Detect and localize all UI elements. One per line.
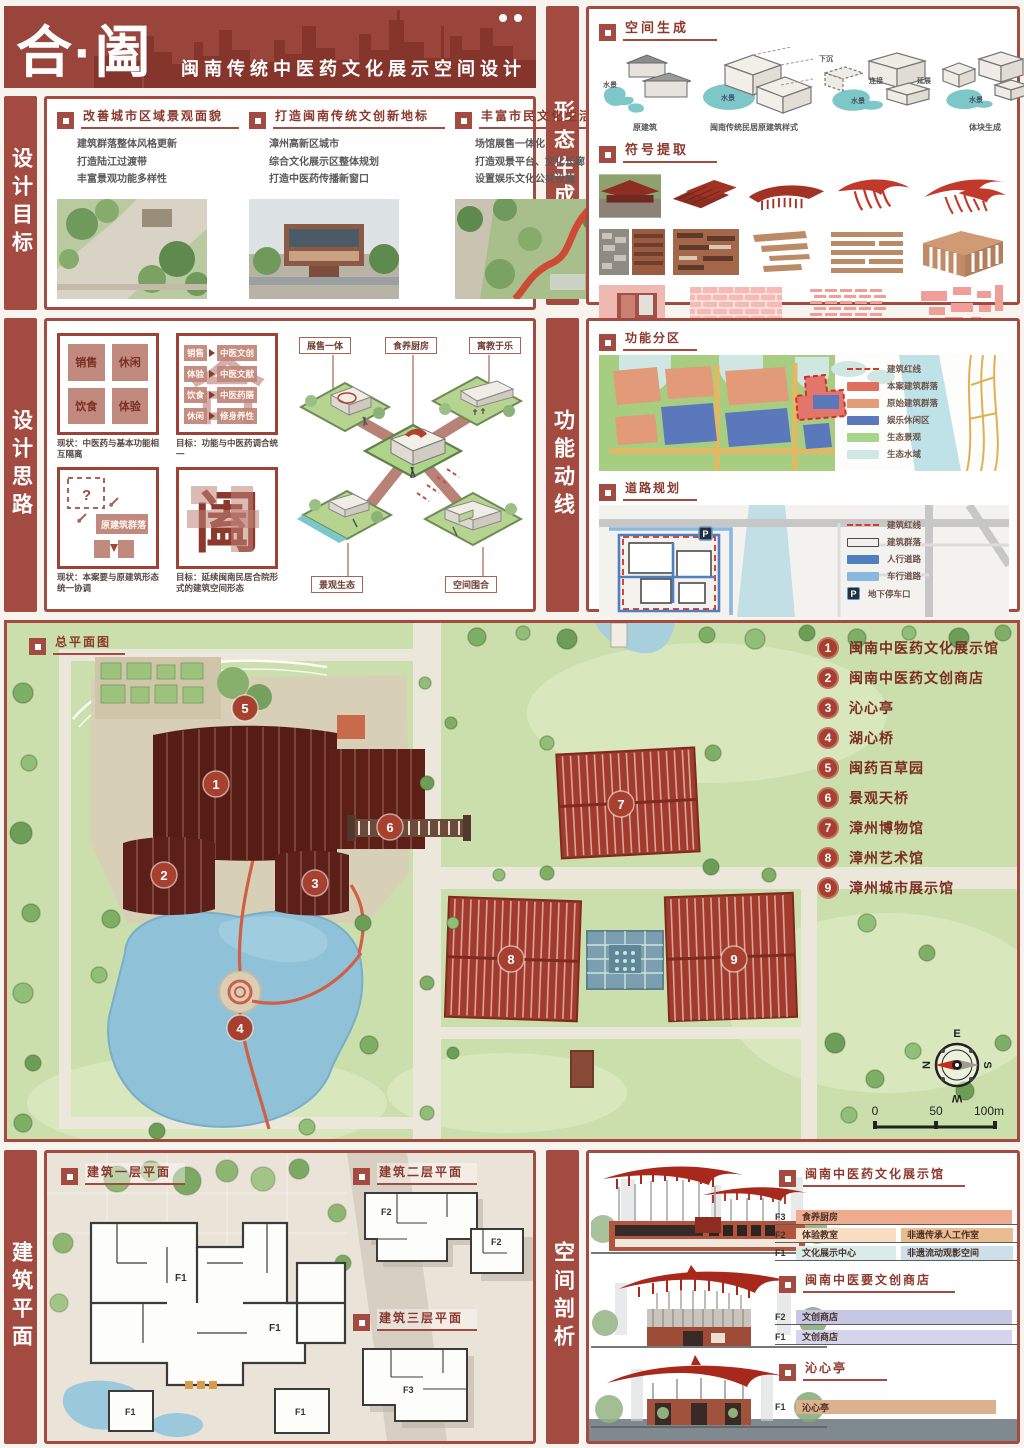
floor-row-f2: F2 体验教室 非遗传承人工作室 [775, 1227, 1017, 1243]
svg-text:0: 0 [872, 1104, 879, 1118]
thinking-diagram-4: 阖 目标：延续闽南民居合院形式的建筑空间形态 [176, 467, 285, 597]
section-square-icon [455, 112, 472, 129]
space-step-original: 水景 原建筑 [599, 47, 691, 133]
floor1-header: 建筑一层平面 [61, 1163, 185, 1185]
zoning-header: 功能分区 [599, 329, 1007, 351]
master-plan-legend: 1闽南中医药文化展示馆 2闽南中医药文创商店 3沁心亭 4湖心桥 5闽药百草园 … [817, 637, 999, 899]
shop-header: 闽南中医要文创商店 [779, 1271, 955, 1293]
section-square-icon [599, 24, 616, 41]
axon-label-enclosure: 空间围合 [445, 576, 497, 593]
zoning-legend: 建筑红线 本案建筑群落 原始建筑群落 娱乐休闲区 生态景观 生态水域 [847, 363, 938, 460]
shop-title: 闽南中医要文创商店 [803, 1271, 955, 1293]
panel-form-generation: 空间生成 水景 原建筑 [586, 6, 1020, 305]
space-generation-diagrams: 水景 原建筑 水景 闽南传统民居原建筑样式 [599, 47, 1007, 133]
svg-text:连接: 连接 [869, 76, 883, 85]
svg-text:F1: F1 [175, 1273, 187, 1284]
svg-text:原建筑群落: 原建筑群落 [101, 519, 147, 530]
svg-text:7: 7 [617, 797, 624, 812]
goal-photo-aerial-park [57, 199, 239, 299]
sidebar-function-circulation: 功能动线 [546, 318, 579, 612]
goal-column-1: 改善城市区域景观面貌 建筑群落整体风格更新 打造陆江过渡带 丰富景观功能多样性 [57, 107, 239, 299]
svg-text:5: 5 [241, 701, 248, 716]
road-legend: 建筑红线 建筑群落 人行道路 车行道路 P地下停车口 [847, 519, 921, 600]
sidebar-design-goals: 设计目标 [4, 96, 37, 310]
symbol-extraction-grid [599, 171, 1007, 329]
section-square-icon [353, 1168, 370, 1185]
master-plan-section: 1 2 3 4 5 6 7 8 9 E N S W [4, 620, 1020, 1142]
floor-row-f1: F1 文化展示中心 非遗流动观影空间 [775, 1245, 1017, 1261]
svg-text:下沉: 下沉 [819, 54, 833, 63]
svg-text:F2: F2 [491, 1237, 502, 1247]
legend-num: 1 [817, 637, 839, 659]
poster-subtitle: 闽南传统中医药文化展示空间设计 [181, 55, 526, 81]
floor3-title: 建筑三层平面 [377, 1309, 477, 1331]
swatch [847, 538, 879, 547]
section-square-icon [249, 112, 266, 129]
panel-function-circulation: 功能分区 [586, 318, 1020, 612]
floor1-title: 建筑一层平面 [85, 1163, 185, 1185]
svg-text:8: 8 [507, 952, 514, 967]
space-step-massing: 水景 闽南传统民居原建筑样式 [695, 47, 813, 133]
pavilion-title: 沁心亭 [803, 1359, 887, 1381]
svg-text:E: E [953, 1028, 960, 1040]
thinking-diagram-1: 销售 休闲 饮食 体验 现状：中医药与基本功能相互隔离 [57, 333, 166, 463]
redline-swatch [847, 368, 879, 370]
sidebar-design-thinking: 设计思路 [4, 318, 37, 612]
legend-num: 2 [817, 667, 839, 689]
swatch [847, 450, 879, 459]
svg-text:F1: F1 [295, 1407, 306, 1417]
svg-text:?: ? [82, 487, 91, 504]
arrow-icon [209, 370, 215, 378]
svg-text:F1: F1 [269, 1323, 281, 1334]
svg-text:100m: 100m [974, 1104, 1004, 1118]
svg-text:2: 2 [160, 868, 167, 883]
section-square-icon [353, 1314, 370, 1331]
museum-title: 闽南中医药文化展示馆 [803, 1165, 965, 1187]
space-generation-header: 空间生成 [599, 17, 1007, 41]
section-square-icon [61, 1168, 78, 1185]
svg-text:水景: 水景 [721, 93, 735, 102]
svg-text:4: 4 [236, 1021, 244, 1036]
svg-text:水景: 水景 [969, 95, 983, 104]
wall-photo-thumbs [599, 229, 665, 275]
axon-label-edutainment: 寓教于乐 [469, 337, 521, 354]
roof-symbol-swallowtail [834, 173, 913, 219]
roof-photo-thumb [599, 173, 661, 219]
svg-text:水景: 水景 [603, 80, 617, 89]
floor-row-f3: F3 食养厨房 [775, 1209, 1017, 1225]
arrow-icon [209, 391, 215, 399]
goal-header-2: 打造闽南传统文创新地标 [249, 107, 445, 129]
svg-text:F3: F3 [403, 1385, 414, 1395]
section-square-icon [599, 146, 616, 163]
axon-label-exhibit-sale: 展售一体 [299, 337, 351, 354]
svg-text:1: 1 [212, 777, 219, 792]
space-step-operations: 下沉 连接 延展 水景 [817, 47, 935, 133]
svg-text:水景: 水景 [851, 96, 865, 105]
thinking-diagram-2: 合 销售中医文创 体验中医文献 饮食中医药膳 休闲修身养性 目标：功能与中医药调… [176, 333, 285, 463]
section-square-icon [57, 112, 74, 129]
svg-text:S: S [981, 1061, 993, 1068]
axon-label-landscape: 景观生态 [311, 576, 363, 593]
stripes-symbol-pattern [827, 229, 907, 275]
section-square-icon [779, 1170, 796, 1187]
legend-num: 6 [817, 787, 839, 809]
space-step-result: 水景 体块生成 [939, 47, 1024, 133]
goal-title-1: 改善城市区域景观面貌 [81, 107, 239, 129]
panel-building-plans: F1 F1 F1 F1 F2 F2 F3 建筑一层平面 建筑二层平面 建筑三层 [44, 1150, 536, 1444]
swatch [847, 555, 879, 564]
floor-row-shop-f1: F1 文创商店 [775, 1329, 1017, 1345]
swatch [847, 399, 879, 408]
museum-header: 闽南中医药文化展示馆 [779, 1165, 965, 1187]
section-square-icon [779, 1364, 796, 1381]
legend-num: 3 [817, 697, 839, 719]
floor3-header: 建筑三层平面 [353, 1309, 477, 1331]
legend-num: 8 [817, 847, 839, 869]
section-square-icon [599, 334, 616, 351]
legend-num: 5 [817, 757, 839, 779]
roof-symbol-flat [669, 173, 739, 219]
svg-text:50: 50 [929, 1104, 943, 1118]
sidebar-space-analysis: 空间剖析 [546, 1150, 579, 1444]
thinking-diagram-grid: 销售 休闲 饮食 体验 现状：中医药与基本功能相互隔离 合 销售中医文创 体验中… [57, 333, 285, 597]
goal-bullets-1: 建筑群落整体风格更新 打造陆江过渡带 丰富景观功能多样性 [77, 136, 237, 189]
floor-row-shop-f2: F2 文创商店 [775, 1309, 1017, 1325]
svg-text:P: P [703, 529, 709, 539]
goal-photo-building [249, 199, 445, 299]
floor-plans-drawing: F1 F1 F1 F1 F2 F2 F3 [47, 1153, 533, 1441]
redline-swatch [847, 524, 879, 526]
swatch [847, 572, 879, 581]
swatch [847, 416, 879, 425]
svg-text:W: W [951, 1092, 962, 1104]
stripes-symbol-steps [747, 229, 819, 275]
panel-space-analysis: 闽南中医药文化展示馆 F3 食养厨房 F2 体验教室 非遗传承人工作室 F1 文… [586, 1150, 1020, 1444]
wall-photo-thumb-2 [673, 229, 739, 275]
floor2-title: 建筑二层平面 [377, 1163, 477, 1185]
pavilion-header: 沁心亭 [779, 1359, 887, 1381]
goal-header-1: 改善城市区域景观面貌 [57, 107, 239, 129]
floor2-header: 建筑二层平面 [353, 1163, 477, 1185]
roof-symbol-double-swallowtail [921, 171, 1007, 221]
road-planning-header: 道路规划 [599, 479, 1007, 501]
goal-bullets-2: 漳州高新区城市 综合文化展示区整体规划 打造中医药传播新窗口 [269, 136, 443, 189]
road-map: P [599, 505, 1009, 617]
floor-row-pavilion-f1: F1 沁心亭 [775, 1399, 1017, 1415]
swatch [847, 382, 879, 391]
goal-title-2: 打造闽南传统文创新地标 [273, 107, 445, 129]
title-banner: 合·阖 闽南传统中医药文化展示空间设计 [4, 6, 536, 88]
section-square-icon [779, 1276, 796, 1293]
symbol-row-roofs [599, 171, 1007, 221]
legend-num: 4 [817, 727, 839, 749]
symbol-extraction-title: 符号提取 [623, 139, 717, 163]
svg-text:3: 3 [311, 876, 318, 891]
symbol-row-walls [599, 227, 1007, 277]
design-poster: 合·阖 闽南传统中医药文化展示空间设计 设计目标 设计思路 建筑平面 形态生成 … [0, 0, 1024, 1448]
svg-text:N: N [921, 1061, 933, 1069]
stripes-symbol-box [915, 227, 1007, 277]
arrow-icon [209, 349, 215, 357]
panel-design-goals: 改善城市区域景观面貌 建筑群落整体风格更新 打造陆江过渡带 丰富景观功能多样性 [44, 96, 536, 310]
arrow-icon [209, 412, 215, 420]
banner-dots [499, 14, 522, 22]
svg-text:9: 9 [730, 952, 737, 967]
legend-num: 9 [817, 877, 839, 899]
master-plan-header: 总平面图 [29, 633, 125, 655]
svg-text:延展: 延展 [916, 76, 932, 85]
sidebar-building-plans: 建筑平面 [4, 1150, 37, 1444]
svg-text:F1: F1 [125, 1407, 136, 1417]
svg-text:6: 6 [386, 820, 393, 835]
space-generation-title: 空间生成 [623, 17, 717, 41]
axon-label-kitchen: 食养厨房 [385, 337, 437, 354]
roof-symbol-eaves [747, 173, 826, 219]
zoning-map-wrap: 建筑红线 本案建筑群落 原始建筑群落 娱乐休闲区 生态景观 生态水域 [599, 355, 1007, 471]
parking-icon: P [847, 587, 860, 600]
poster-title: 合·阖 [16, 8, 153, 88]
section-square-icon [599, 484, 616, 501]
zoning-map [599, 355, 1009, 471]
road-map-wrap: P 建筑红线 建筑群落 人行道路 车行道路 P地下停车口 [599, 505, 1007, 617]
legend-num: 7 [817, 817, 839, 839]
goal-column-2: 打造闽南传统文创新地标 漳州高新区城市 综合文化展示区整体规划 打造中医药传播新… [249, 107, 445, 299]
symbol-extraction-header: 符号提取 [599, 139, 1007, 163]
thinking-axon-diagram: 展售一体 食养厨房 寓教于乐 景观生态 空间围合 [293, 333, 523, 597]
zoning-title: 功能分区 [623, 329, 697, 351]
thinking-diagram-3: ? 原建筑群落 现状：本案要与原建筑形态统一协调 [57, 467, 166, 597]
svg-text:F2: F2 [381, 1207, 392, 1217]
swatch [847, 433, 879, 442]
section-square-icon [29, 638, 46, 655]
master-plan-title: 总平面图 [53, 633, 125, 655]
panel-design-thinking: 销售 休闲 饮食 体验 现状：中医药与基本功能相互隔离 合 销售中医文创 体验中… [44, 318, 536, 612]
road-planning-title: 道路规划 [623, 479, 697, 501]
